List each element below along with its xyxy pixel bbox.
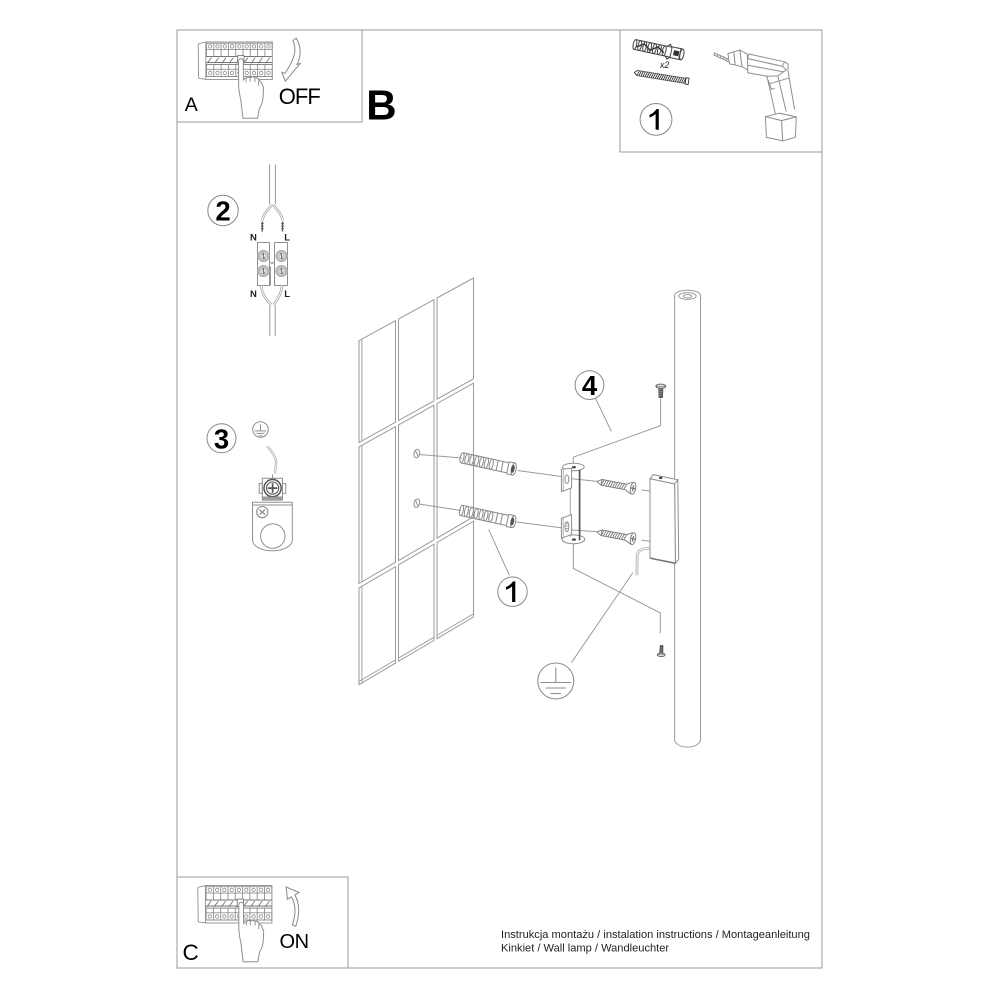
svg-text:A: A: [185, 94, 198, 116]
svg-text:L: L: [284, 233, 290, 244]
svg-text:N: N: [250, 289, 257, 300]
svg-text:3: 3: [214, 423, 229, 454]
svg-text:Kinkiet / Wall lamp / Wandleuc: Kinkiet / Wall lamp / Wandleuchter: [501, 943, 669, 955]
svg-text:x2: x2: [659, 60, 669, 70]
svg-text:OFF: OFF: [279, 84, 321, 109]
svg-text:2: 2: [215, 196, 230, 227]
svg-text:Instrukcja montażu / instalati: Instrukcja montażu / instalation instruc…: [501, 929, 810, 941]
svg-text:ON: ON: [280, 931, 309, 953]
svg-text:B: B: [366, 82, 396, 129]
svg-text:4: 4: [582, 370, 598, 401]
svg-text:C: C: [183, 940, 199, 965]
svg-text:N: N: [250, 233, 257, 244]
svg-text:L: L: [284, 289, 290, 300]
